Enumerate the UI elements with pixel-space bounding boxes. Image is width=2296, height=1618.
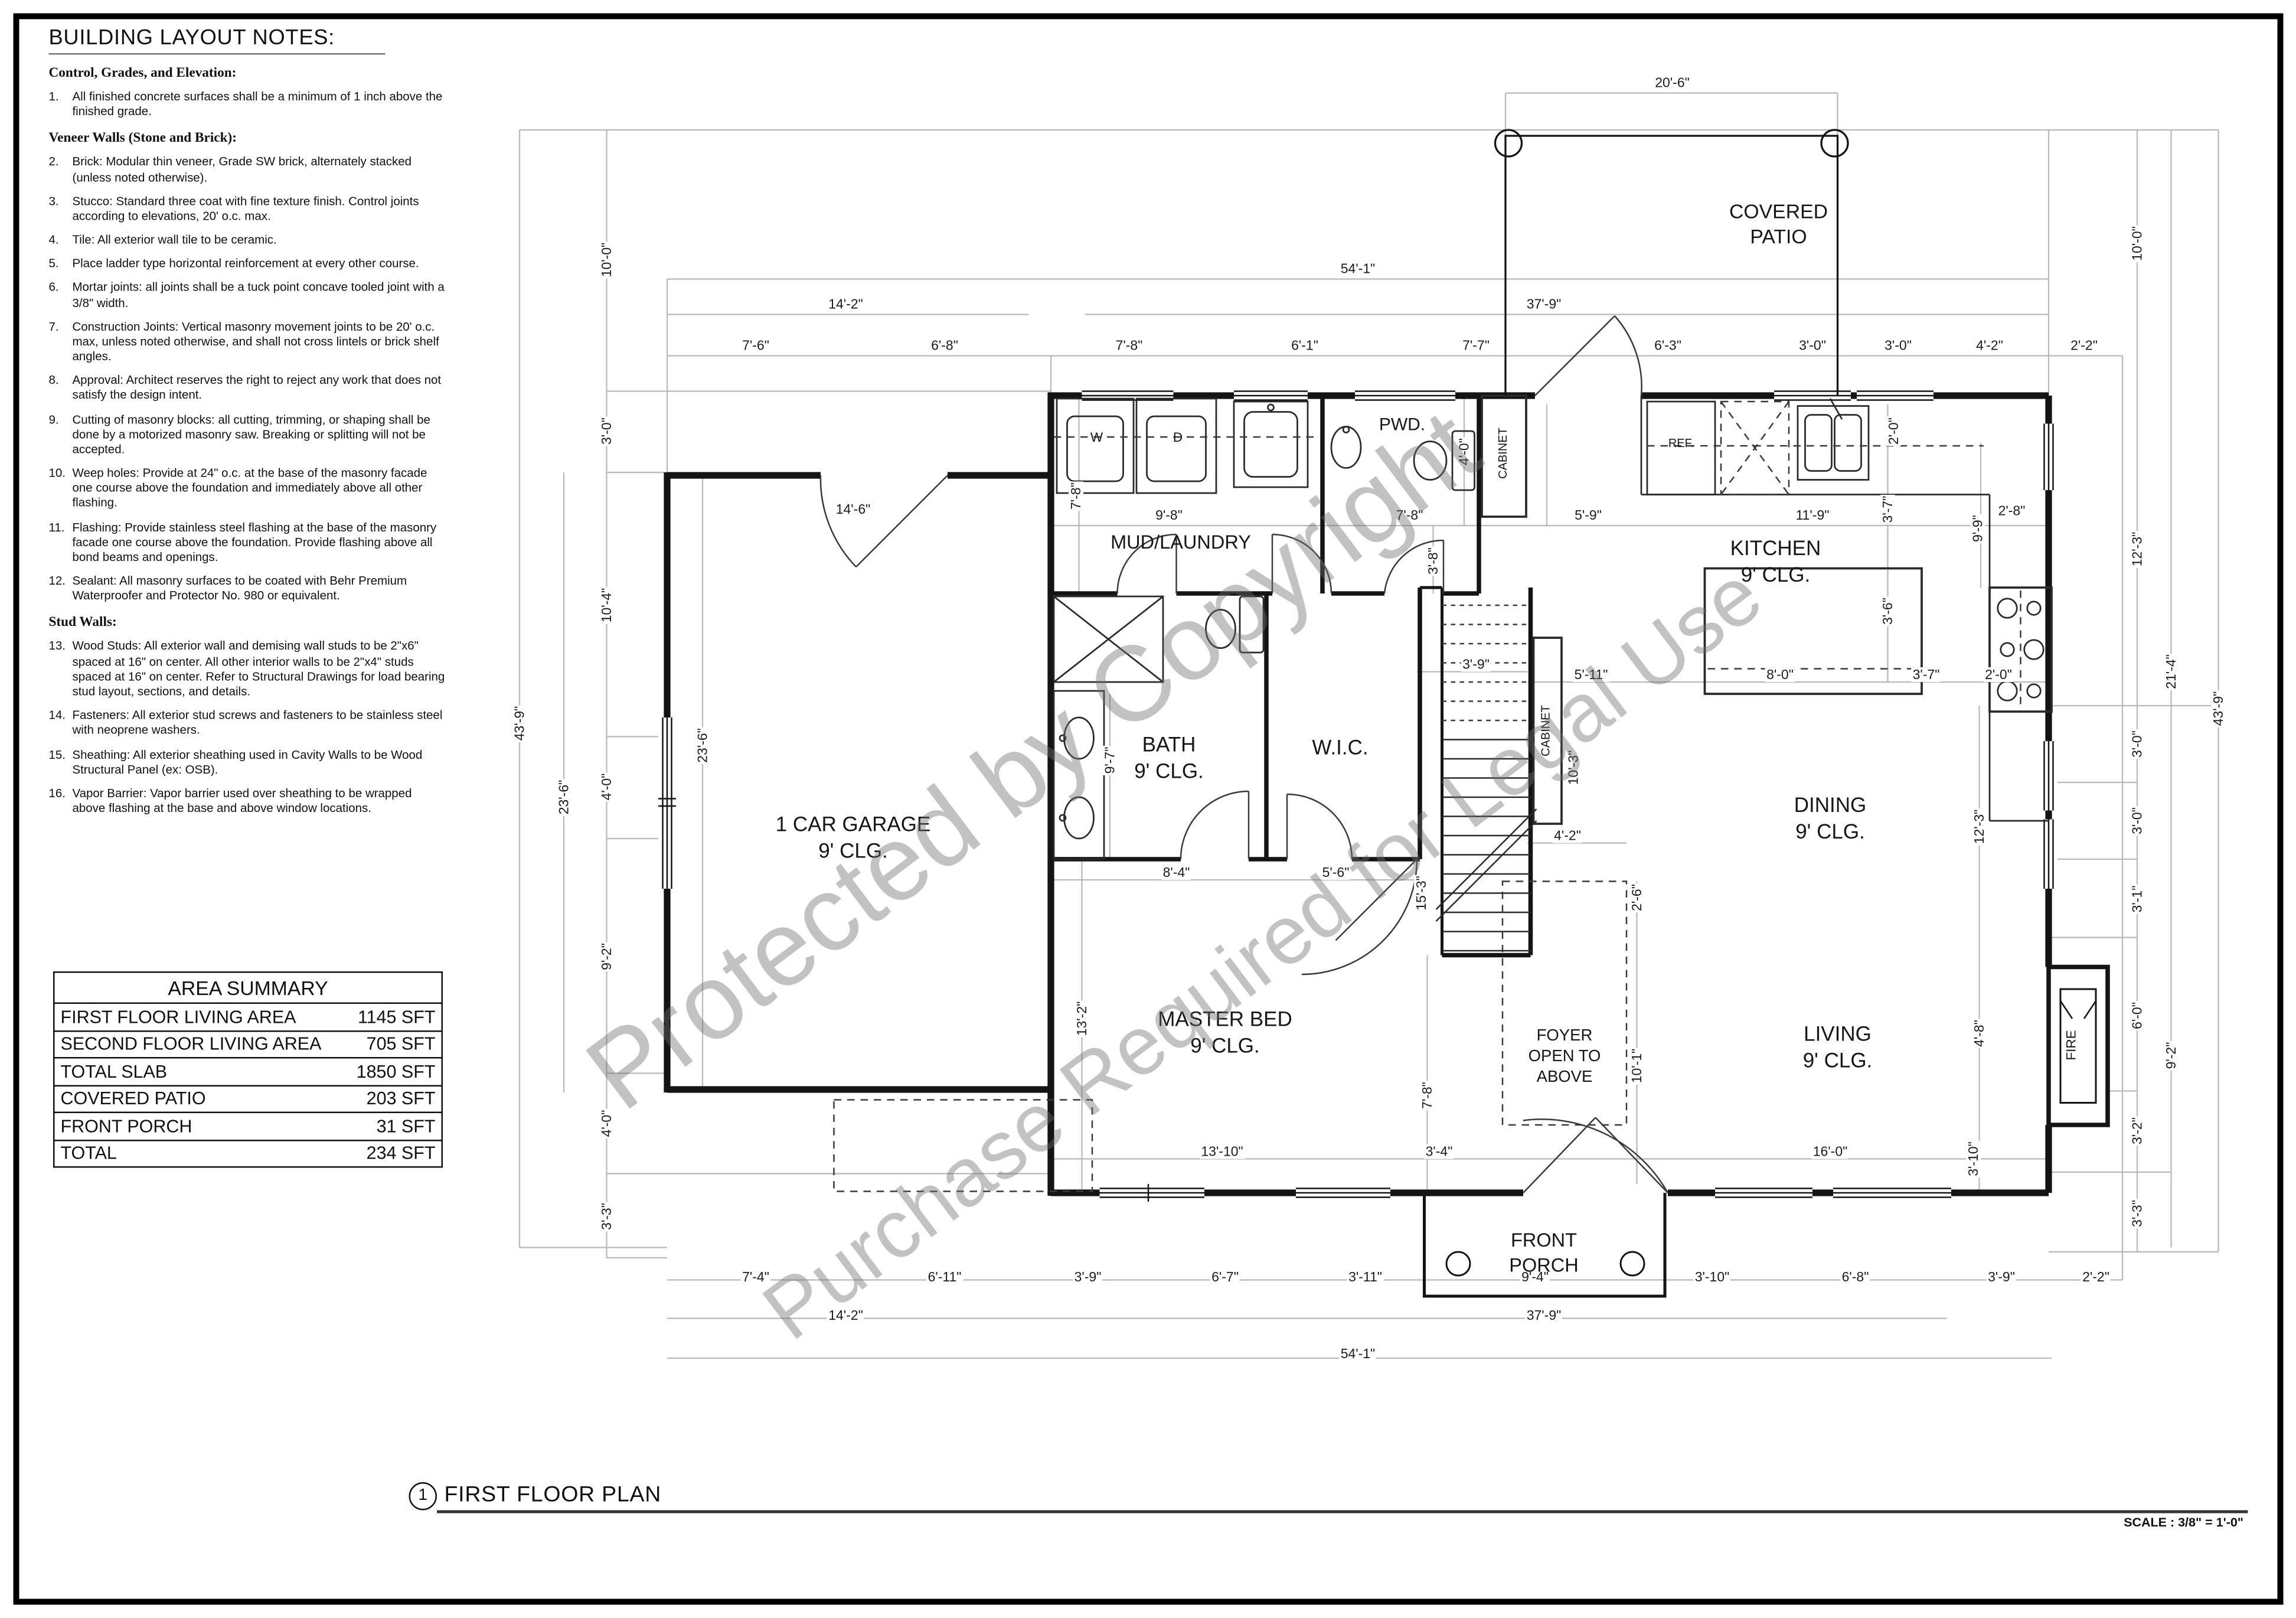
plan-title: FIRST FLOOR PLAN (445, 1482, 662, 1508)
dimension-label: 3'-3" (599, 1202, 614, 1232)
room-label-washer: W (1090, 430, 1103, 447)
room-label-line: 9' CLG. (1794, 820, 1867, 846)
dimension-label: 2'-6" (1629, 883, 1644, 913)
dimension-label: 13'-10" (1200, 1144, 1245, 1159)
dimension-label: 9'-8" (1154, 508, 1184, 523)
dimension-label: 4'-2" (1553, 828, 1583, 843)
patio-column (1821, 130, 1848, 156)
dimension-label: 8'-4" (1161, 865, 1191, 880)
porch-column (1621, 1252, 1644, 1276)
dimension-label: 9'-2" (599, 942, 614, 972)
dimension-label: 12'-3" (1972, 808, 1987, 846)
dimension-label: 5'-9" (1573, 508, 1603, 523)
dimension-label: 43'-9" (512, 704, 527, 742)
dimension-label: 4'-8" (1972, 1019, 1987, 1049)
dimension-label: 6'-8" (930, 338, 960, 353)
dimension-label: 3'-0" (2130, 729, 2145, 759)
room-label-master-bed: MASTER BED9' CLG. (1158, 1007, 1292, 1060)
dimension-label: 3'-9" (1987, 1270, 2017, 1284)
dimension-label: 7'-8" (1114, 338, 1144, 353)
extension-lines (520, 93, 2219, 1359)
dimension-label: 9'-2" (2164, 1040, 2179, 1071)
room-label-front-porch: FRONTPORCH (1509, 1229, 1578, 1278)
dimension-label: 20'-6" (1654, 76, 1691, 90)
dimension-label: 3'-0" (1883, 338, 1913, 353)
dimension-label: 3'-7" (1880, 494, 1895, 524)
dimension-label: 5'-6" (1321, 865, 1351, 880)
dimension-label: 6'-3" (1653, 338, 1683, 353)
dimension-label: 14'-2" (827, 1308, 865, 1323)
room-label-line: 9' CLG. (1730, 563, 1821, 589)
fixtures (1054, 396, 2052, 951)
porch-column (1446, 1252, 1470, 1276)
patio-column (1495, 130, 1522, 156)
room-label-cabinet-stairs: CABINET (1539, 705, 1554, 756)
plan-number-badge: 1 (409, 1482, 437, 1511)
room-label-pwd: PWD. (1379, 414, 1425, 436)
room-label-fireplace: FIRE (2064, 1030, 2081, 1060)
drawing-sheet: BUILDING LAYOUT NOTES: Control, Grades, … (0, 0, 2296, 1618)
room-label-dining: DINING9' CLG. (1794, 793, 1867, 846)
room-label-line: 1 CAR GARAGE (776, 812, 931, 839)
dimension-label: 6'-7" (1210, 1270, 1240, 1284)
dimension-label: 13'-2" (1074, 1000, 1089, 1038)
dimension-label: 3'-9" (1461, 657, 1491, 672)
title-underline (437, 1511, 2248, 1513)
dimension-label: 7'-8" (1069, 481, 1083, 511)
room-label-wic: W.I.C. (1312, 735, 1368, 762)
room-label-line: COVERED (1729, 199, 1828, 224)
room-label-line: W (1090, 430, 1103, 447)
dimension-label: 23'-6" (557, 778, 571, 816)
room-label-line: PATIO (1729, 224, 1828, 250)
dimension-label: 6'-1" (1290, 338, 1320, 353)
dimension-label: 2'-8" (1997, 504, 2027, 518)
dimension-label: 23'-6" (695, 727, 710, 765)
room-label-line: D (1173, 430, 1183, 447)
dimension-label: 7'-8" (1420, 1081, 1435, 1111)
dimension-label: 4'-0" (599, 1108, 614, 1139)
room-label-line: FIRE (2064, 1030, 2081, 1060)
room-label-kitchen: KITCHEN9' CLG. (1730, 536, 1821, 589)
dimension-label: 2'-2" (2081, 1270, 2111, 1284)
dimension-label: 12'-3" (2130, 530, 2145, 568)
room-label-line: ABOVE (1529, 1068, 1601, 1088)
dimension-label: 3'-0" (599, 416, 614, 446)
dimension-label: 3'-4" (1424, 1144, 1454, 1159)
dimension-label: 7'-7" (1461, 338, 1491, 353)
dimension-label: 3'-0" (1798, 338, 1828, 353)
room-label-line: REF. (1668, 437, 1694, 452)
room-label-line: MASTER BED (1158, 1007, 1292, 1033)
dimension-label: 3'-9" (1073, 1270, 1103, 1284)
dimension-label: 16'-0" (1811, 1144, 1849, 1159)
dimension-label: 4'-2" (1975, 338, 2005, 353)
dimension-label: 3'-1" (2130, 884, 2145, 914)
room-label-line: PWD. (1379, 414, 1425, 436)
room-label-line: CABINET (1497, 428, 1512, 479)
dimension-label: 3'-10" (1693, 1270, 1731, 1284)
room-label-line: KITCHEN (1730, 536, 1821, 563)
dimension-label: 14'-6" (834, 502, 872, 517)
room-label-bath: BATH9' CLG. (1134, 732, 1204, 785)
room-label-line: 9' CLG. (1134, 759, 1204, 785)
dimension-label: 3'-10" (1966, 1140, 1981, 1178)
room-label-line: BATH (1134, 732, 1204, 759)
room-label-line: OPEN TO (1529, 1046, 1601, 1067)
dimension-label: 54'-1" (1339, 262, 1377, 276)
dimension-label: 9'-7" (1103, 745, 1118, 775)
dimension-label: 43'-9" (2211, 690, 2226, 728)
dimension-label: 4'-0" (599, 772, 614, 802)
dimension-label: 3'-8" (1426, 546, 1441, 576)
dimension-label: 21'-4" (2164, 653, 2179, 691)
dimension-label: 3'-3" (2130, 1199, 2145, 1229)
dimension-label: 14'-2" (827, 297, 865, 312)
dimension-label: 37'-9" (1525, 1308, 1563, 1323)
dimension-label: 7'-6" (741, 338, 771, 353)
room-label-covered-patio: COVEREDPATIO (1729, 199, 1828, 250)
room-label-line: PORCH (1509, 1254, 1578, 1278)
dimension-label: 4'-0" (1457, 437, 1472, 467)
room-label-line: FOYER (1529, 1026, 1601, 1046)
room-label-living: LIVING9' CLG. (1803, 1022, 1873, 1075)
room-label-foyer: FOYEROPEN TOABOVE (1529, 1026, 1601, 1088)
room-label-line: MUD/LAUNDRY (1111, 531, 1251, 556)
room-label-line: 9' CLG. (1803, 1048, 1873, 1075)
dimension-label: 10'-3" (1566, 749, 1581, 787)
dimension-label: 9'-9" (1971, 514, 1985, 544)
room-label-line: DINING (1794, 793, 1867, 820)
dimension-label: 7'-4" (741, 1270, 771, 1284)
dimension-label: 7'-8" (1394, 508, 1425, 523)
scale-label: SCALE : 3/8" = 1'-0" (1948, 1515, 2243, 1529)
room-label-line: W.I.C. (1312, 735, 1368, 762)
dimension-label: 3'-7" (1911, 667, 1941, 682)
dimension-label: 10'-0" (2130, 225, 2145, 263)
room-label-mud-laundry: MUD/LAUNDRY (1111, 531, 1251, 556)
dimension-label: 2'-0" (1984, 667, 2014, 682)
dimension-label: 37'-9" (1525, 297, 1563, 312)
dimension-label: 3'-6" (1880, 596, 1895, 627)
dimension-label: 15'-3" (1414, 875, 1429, 912)
dimension-label: 5'-11" (1573, 667, 1609, 682)
dimension-label: 10'-0" (599, 241, 614, 279)
dimension-label: 3'-0" (2130, 806, 2145, 836)
room-label-line: FRONT (1509, 1229, 1578, 1254)
dimension-label: 11'-9" (1794, 508, 1831, 523)
dimension-label: 10'-1" (1629, 1047, 1644, 1085)
room-label-garage: 1 CAR GARAGE9' CLG. (776, 812, 931, 865)
dimension-label: 3'-2" (2130, 1116, 2145, 1146)
room-label-cabinet-pwd: CABINET (1497, 428, 1512, 479)
room-label-line: CABINET (1539, 705, 1554, 756)
room-label-line: LIVING (1803, 1022, 1873, 1048)
dimension-label: 6'-0" (2130, 1001, 2145, 1031)
dimension-label: 3'-11" (1347, 1270, 1384, 1284)
dimension-label: 6'-11" (926, 1270, 963, 1284)
dimension-label: 54'-1" (1339, 1346, 1377, 1361)
room-label-refrigerator: REF. (1668, 437, 1694, 452)
dimension-label: 6'-8" (1840, 1270, 1870, 1284)
dimension-label: 8'-0" (1765, 667, 1795, 682)
room-label-dryer: D (1173, 430, 1183, 447)
room-label-line: 9' CLG. (1158, 1033, 1292, 1060)
dimension-label: 10'-4" (599, 586, 614, 624)
floor-plan-linework (0, 0, 2296, 1618)
dimension-label: 2'-2" (2069, 338, 2099, 353)
dimension-label: 2'-0" (1886, 416, 1901, 446)
room-label-line: 9' CLG. (776, 839, 931, 865)
